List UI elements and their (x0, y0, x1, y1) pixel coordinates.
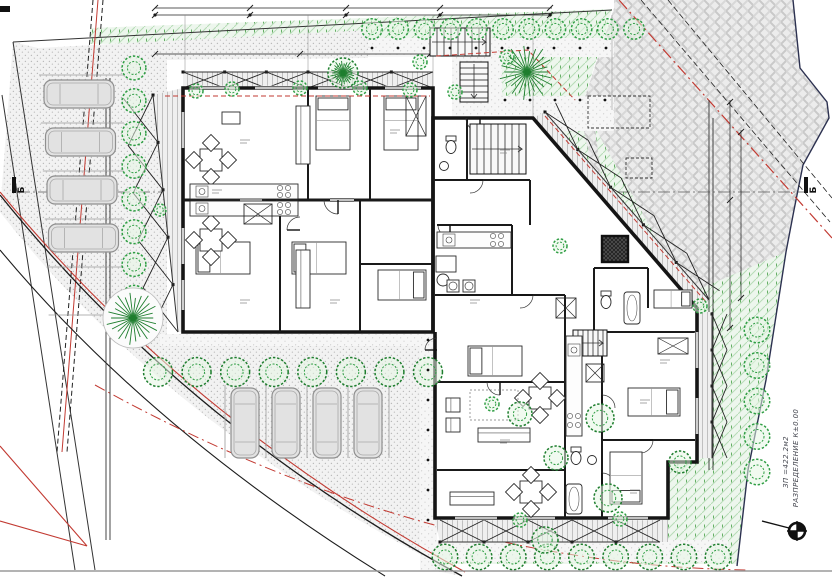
site-plan-sheet: Б Б РАЗПРЕДЕЛЕНИЕ К±0.00 ЗП =422.2м2 (0, 0, 832, 578)
elevator-shaft (602, 236, 628, 262)
car-symbol (272, 388, 300, 458)
car-symbol (46, 128, 116, 156)
axis-label-left: Б (17, 186, 27, 193)
car-symbol (44, 80, 114, 108)
car-symbol (47, 176, 117, 204)
sheet-corner-tick (0, 6, 10, 12)
axis-label-right: Б (809, 186, 819, 193)
car-symbol (354, 388, 382, 458)
north-benchmark-icon (762, 521, 807, 541)
drawing-title-block: РАЗПРЕДЕЛЕНИЕ К±0.00 ЗП =422.2м2 (782, 409, 800, 508)
car-symbol (49, 224, 119, 252)
car-symbol (313, 388, 341, 458)
title-line1: РАЗПРЕДЕЛЕНИЕ К±0.00 (792, 409, 800, 508)
car-symbol (231, 388, 259, 458)
axis-marker-right: Б (804, 177, 819, 193)
site-plan-drawing: Б Б РАЗПРЕДЕЛЕНИЕ К±0.00 ЗП =422.2м2 (0, 0, 832, 578)
title-line2: ЗП =422.2м2 (782, 436, 790, 488)
